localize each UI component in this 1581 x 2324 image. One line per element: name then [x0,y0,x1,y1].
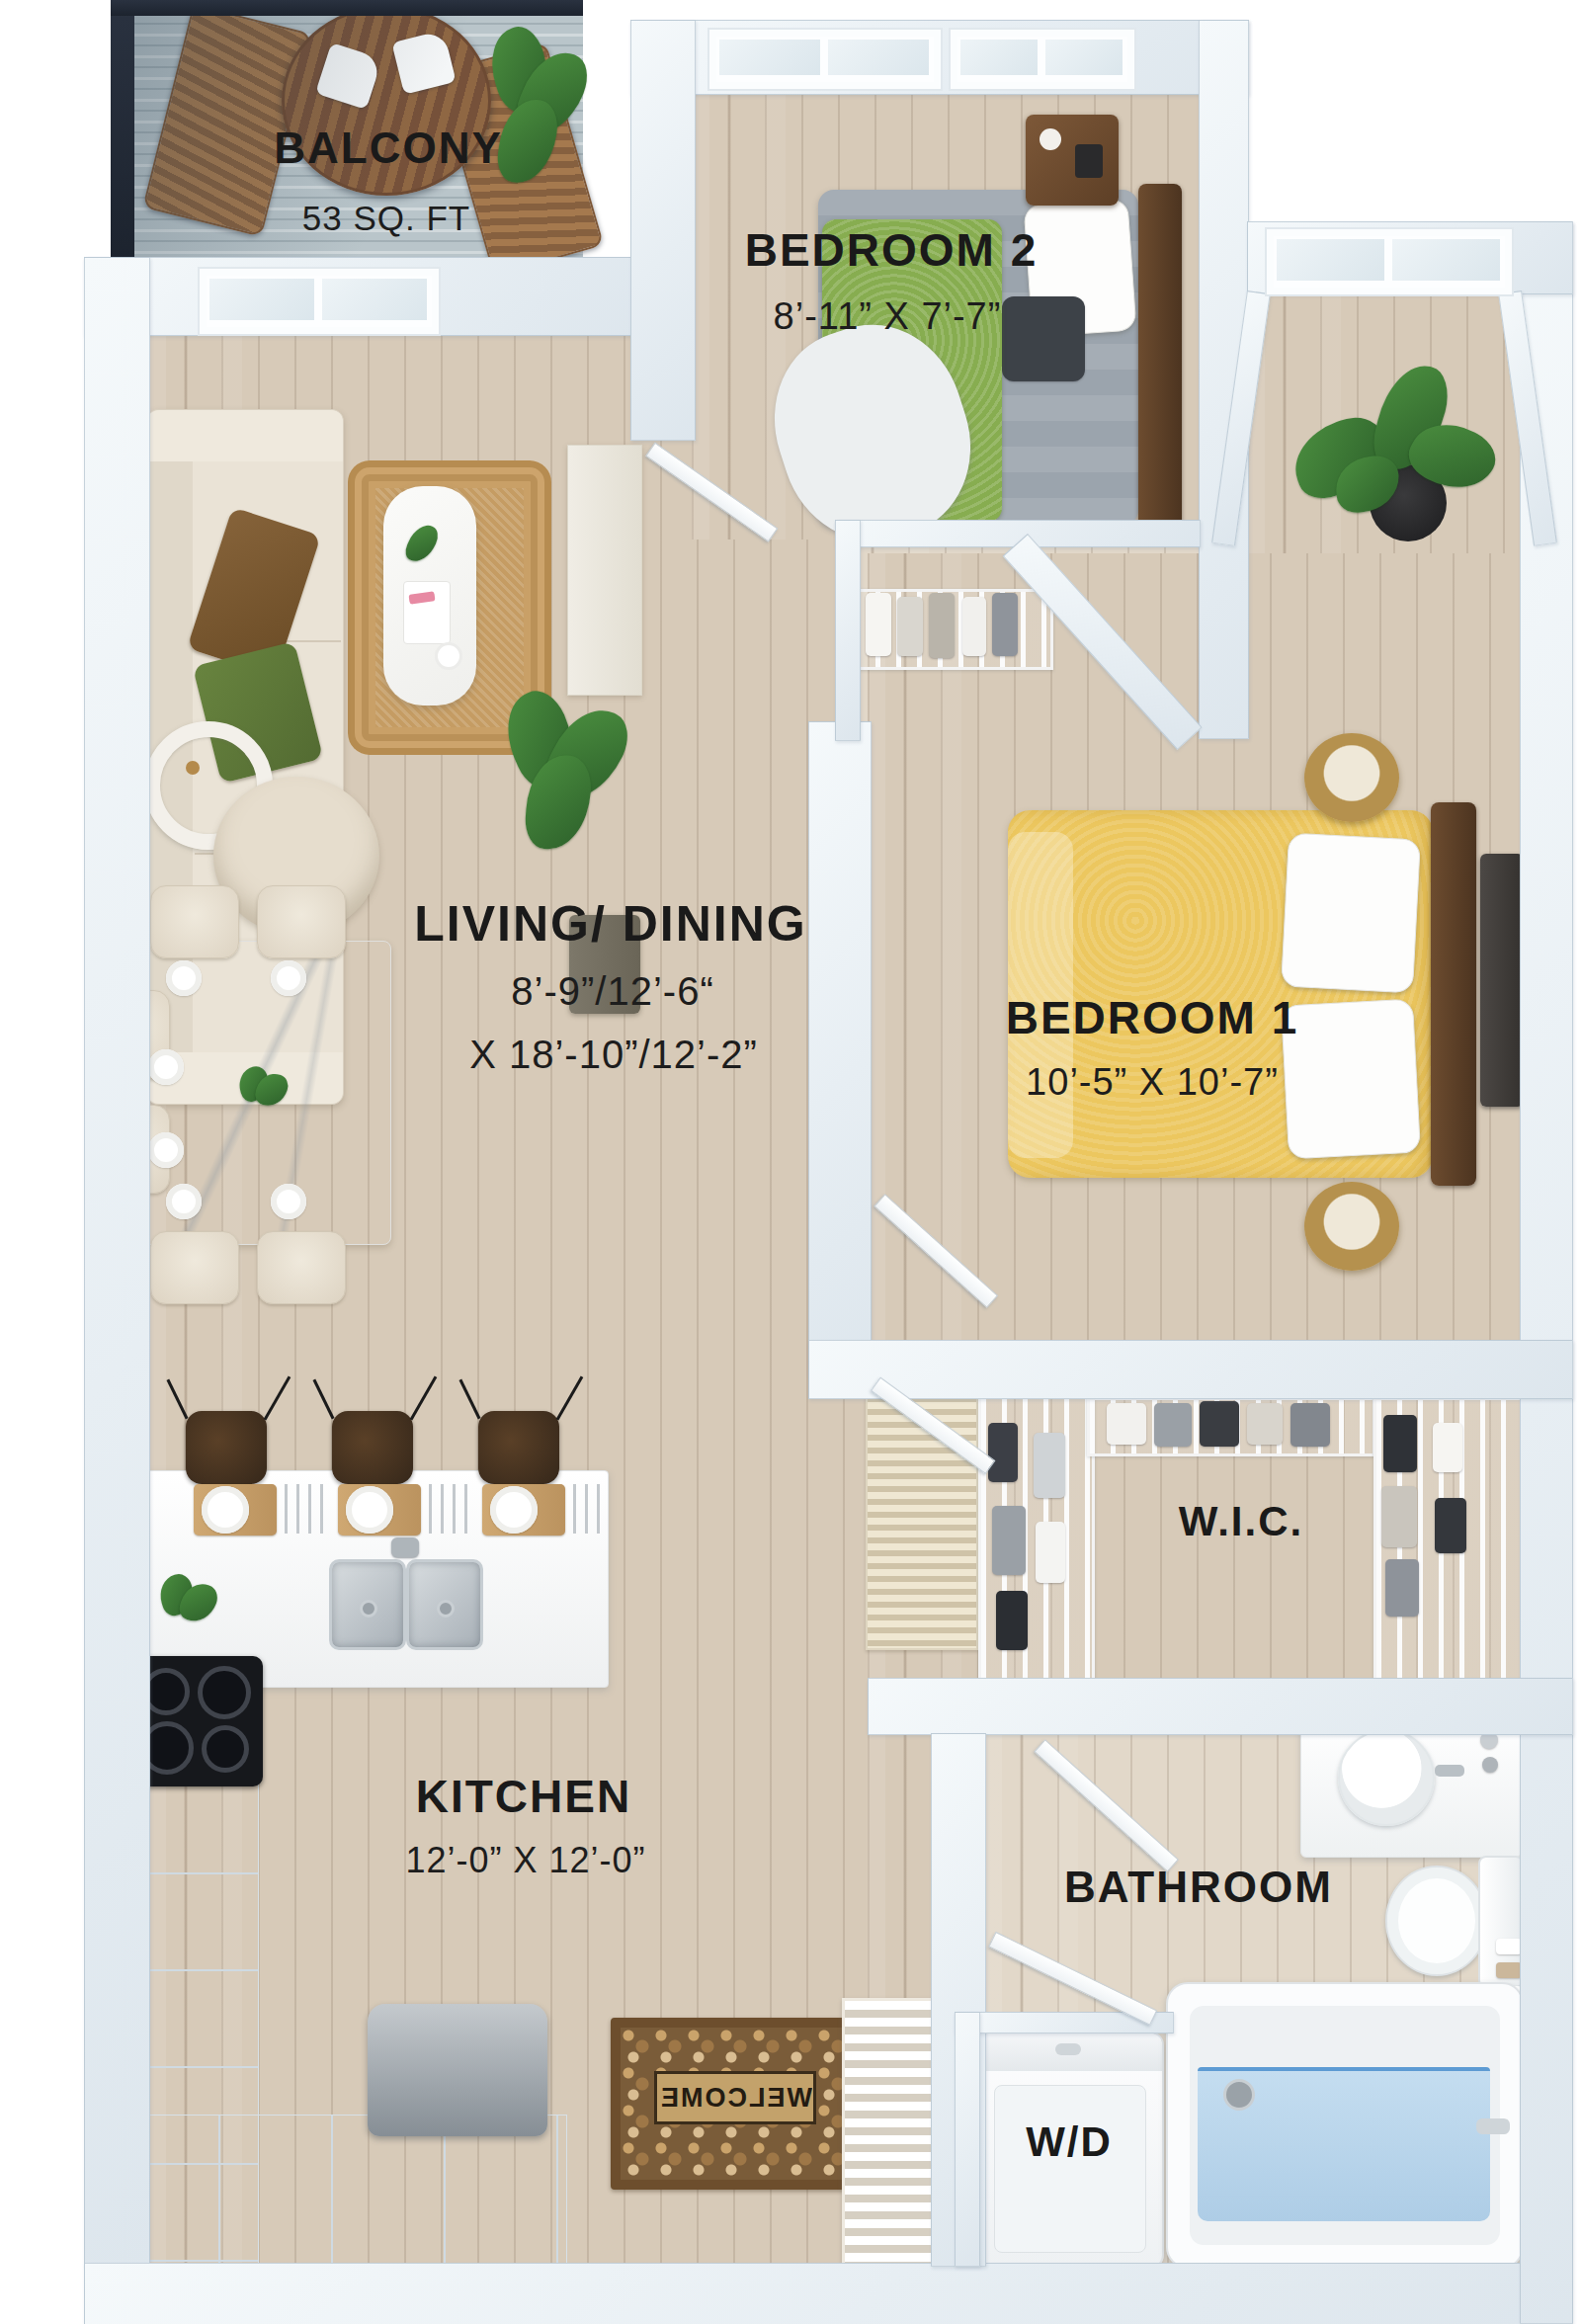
clothes [929,593,955,658]
toiletries [1482,1757,1498,1773]
toilet [1385,1866,1488,1976]
place-setting [271,960,306,996]
clothes [988,1423,1018,1482]
tub-faucet [1476,2118,1510,2134]
place-setting [271,1184,306,1219]
wic-label: W.I.C. [1179,1498,1303,1545]
living-dining-label: LIVING/ DINING [414,895,806,953]
tub-drain [1223,2079,1255,2111]
dining-chair [150,885,239,958]
side-table [1304,733,1399,822]
balcony-frame [111,0,583,16]
plate [202,1486,249,1534]
clothes [1247,1403,1283,1445]
bedroom-2-label: BEDROOM 2 [745,223,1039,277]
bathroom-label: BATHROOM [1064,1863,1333,1912]
place-setting [148,1049,184,1085]
clothes [992,1506,1026,1575]
wall [955,2012,980,2267]
island-plant [158,1571,219,1634]
clothes [1034,1433,1065,1498]
shoes [1433,1423,1462,1472]
balcony-frame [111,0,134,265]
dining-chair [257,1231,346,1304]
cutlery [573,1484,603,1534]
pillow [1281,999,1421,1160]
bedroom-1-dims: 10’-5” X 10’-7” [1026,1061,1279,1104]
wall [630,20,696,441]
clothes [1200,1401,1239,1447]
media-console [567,445,642,696]
plate [490,1486,538,1534]
wall [868,1678,1573,1735]
skylight-window [707,28,943,91]
balcony-label: BALCONY [274,124,503,173]
living-plant [499,686,629,856]
living-dining-dims-1: 8’-9”/12’-6“ [511,969,713,1014]
kitchen-label: KITCHEN [416,1770,631,1823]
doormat-band: WELCOME [654,2071,816,2124]
clothes [1290,1403,1330,1447]
dining-chair [257,885,346,958]
bathroom-faucet [1435,1765,1464,1777]
bedroom-1-plant [1285,362,1494,563]
bar-stool [478,1411,559,1484]
floor-plan: WELCOME [0,0,1581,2324]
cutlery [429,1484,468,1534]
place-setting [148,1132,184,1168]
kitchen-faucet [391,1537,419,1557]
plate [346,1486,393,1534]
pillow [1281,833,1421,994]
kitchen-cabinets [107,2115,567,2269]
coffee-table [383,486,476,705]
vessel-sink [1338,1729,1435,1826]
bar-stool [332,1411,413,1484]
shoes [1385,1559,1419,1617]
balcony-area: 53 SQ. FT [302,199,470,238]
refrigerator [368,2004,547,2136]
towel-rack [1496,1962,1522,1978]
bedroom-1-label: BEDROOM 1 [1006,991,1299,1044]
skylight-window [949,28,1136,91]
lamp-bulb [186,761,200,775]
wall [808,1340,1573,1399]
dresser [1480,854,1524,1107]
nightstand [1026,115,1119,206]
clothes [962,597,986,656]
shoes [1381,1486,1417,1547]
bar-stool [186,1411,267,1484]
clothes [992,593,1018,656]
doormat: WELCOME [611,2018,874,2190]
wall [808,721,872,1377]
place-setting [166,1184,202,1219]
place-setting [166,960,202,996]
table-centerpiece [237,1065,289,1111]
kitchen-sink [406,1559,483,1650]
clothes [1154,1403,1192,1447]
clothes [1036,1522,1065,1583]
wall [84,257,150,2267]
wall [84,2263,1522,2324]
clothes [897,597,923,656]
shoes [1435,1498,1466,1553]
doormat-text: WELCOME [659,2083,812,2114]
bay-window [1265,227,1514,296]
bathtub [1166,1982,1524,2269]
towel-rack [1496,1939,1522,1954]
clothes [866,593,891,656]
dining-chair [150,1231,239,1304]
living-window [198,267,441,336]
laundry-label: W/D [1026,2118,1113,2166]
clothes [1107,1403,1146,1445]
headboard [1138,184,1182,532]
living-dining-dims-2: X 18’-10”/12’-2” [469,1033,758,1077]
kitchen-sink [329,1559,406,1650]
side-table [1304,1182,1399,1271]
shoes [1383,1415,1417,1472]
pillow [1002,296,1085,381]
wall [835,520,861,741]
kitchen-dims: 12’-0” X 12’-0” [405,1840,645,1881]
headboard [1431,802,1476,1186]
bedroom-2-dims: 8’-11” X 7’-7” [774,295,1002,338]
clothes [996,1591,1028,1650]
cutlery [285,1484,324,1534]
